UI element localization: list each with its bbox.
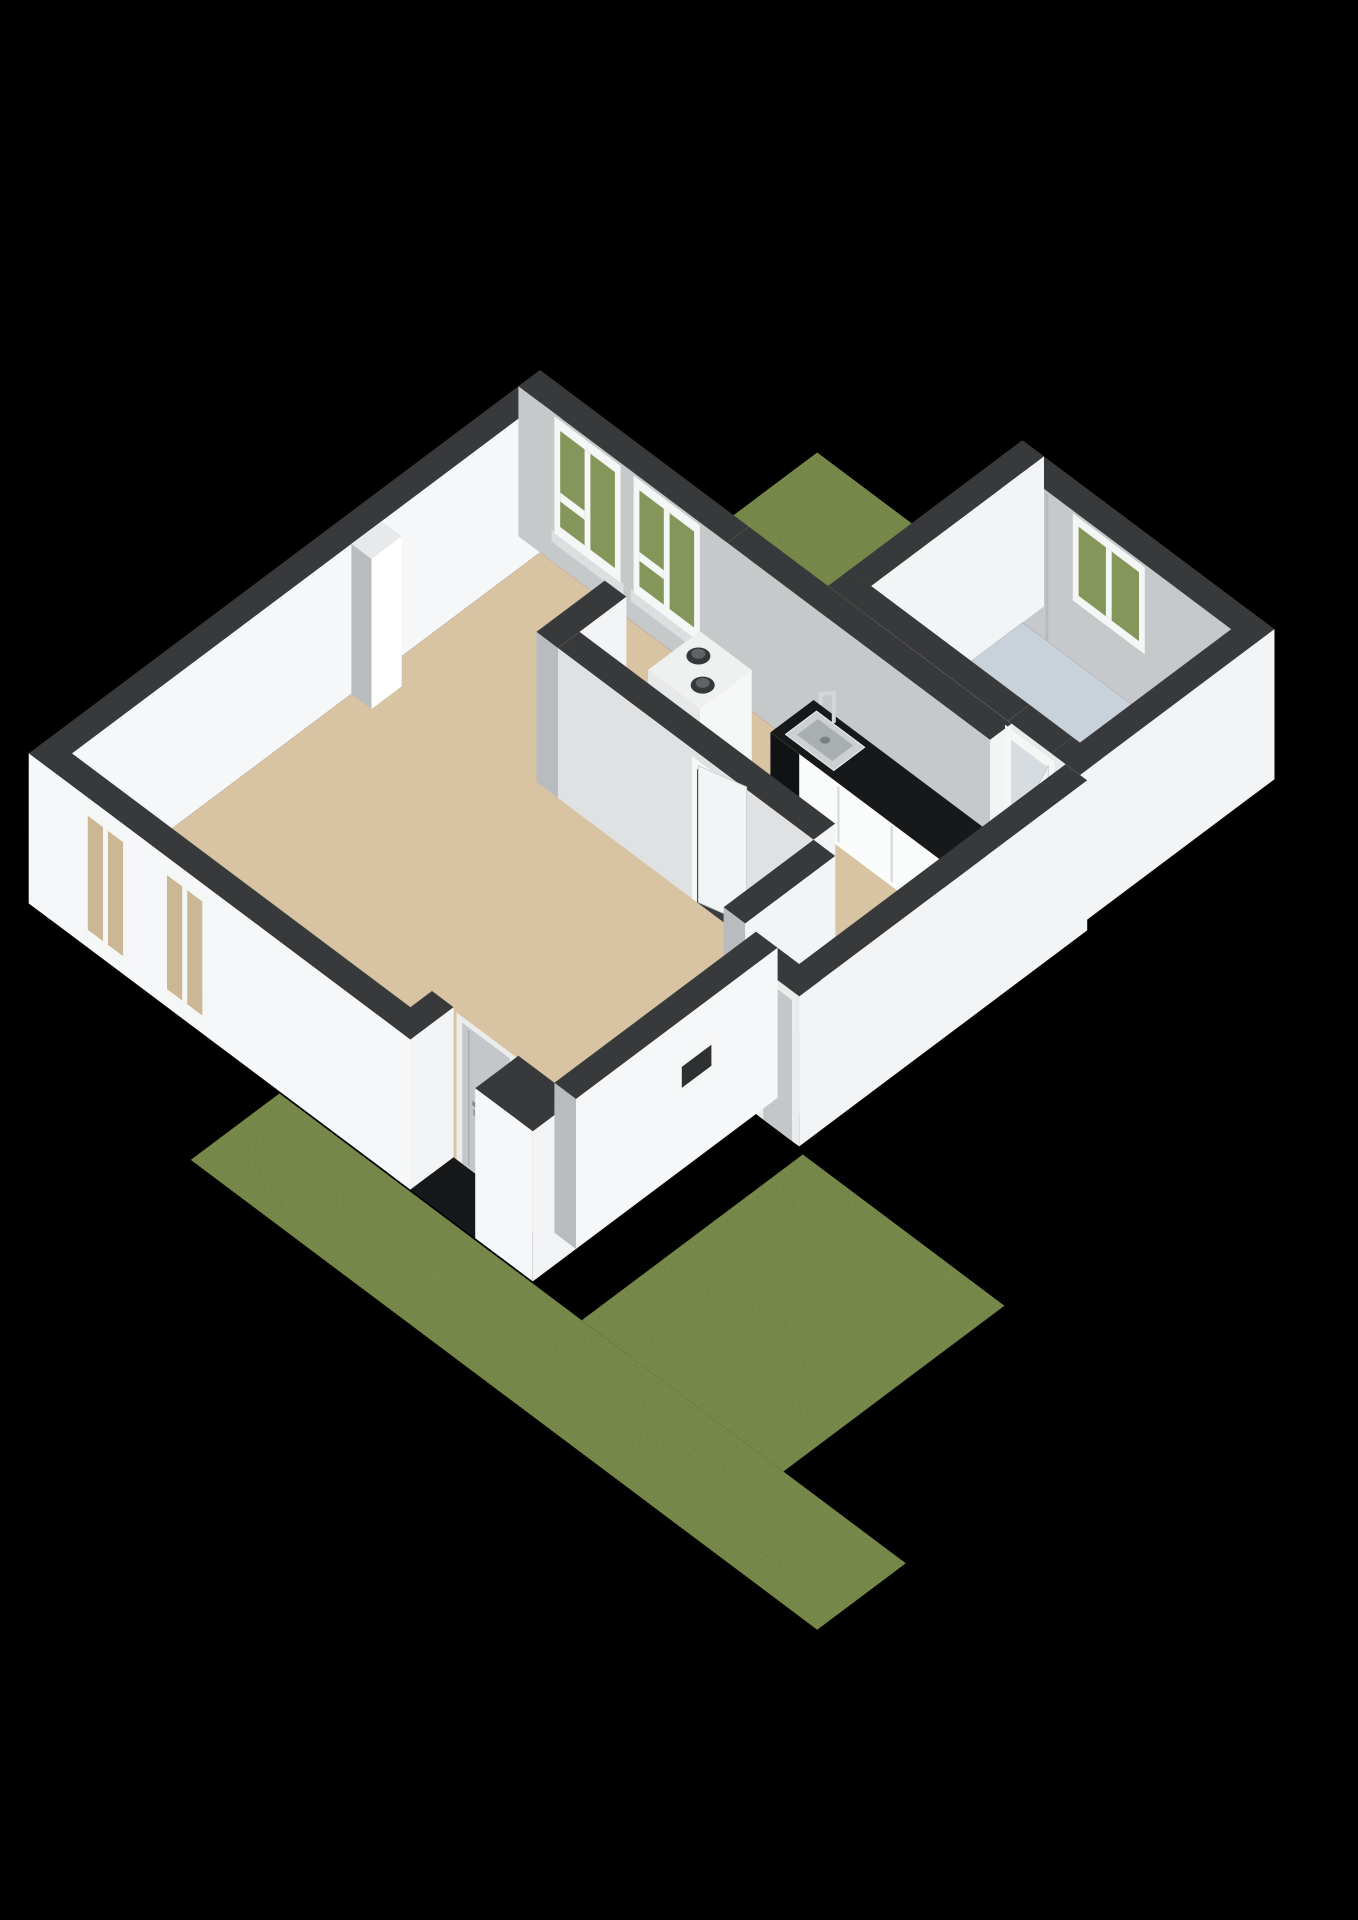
alcove-side-wall — [389, 991, 454, 1190]
storage-window-mullion — [1106, 547, 1112, 620]
kitchen-partition-short-face-v — [536, 632, 558, 798]
wall-pillar — [351, 521, 401, 709]
right-exterior-wall-face-v — [554, 1083, 576, 1249]
lower-window-1-mullion — [103, 827, 108, 945]
boiler-vent-1-inner — [691, 649, 705, 659]
storage-wall-seam — [1045, 493, 1048, 642]
wall-pillar-face-v — [351, 544, 371, 709]
sink-drain — [820, 737, 830, 744]
alcove-side-wall-face-v — [389, 1023, 411, 1189]
interior-door-frame-left — [692, 756, 697, 902]
floorplan-3d-render — [0, 0, 1358, 1920]
living-window-1-mullion — [585, 449, 591, 549]
living-window-2-mullion — [664, 509, 670, 609]
cabinet-seam-1 — [837, 786, 839, 843]
floorplan-viewport — [0, 0, 1358, 1920]
wall-pillar-face-u — [372, 536, 402, 709]
front-door-edge — [468, 1030, 469, 1166]
cabinet-seam-2 — [891, 826, 893, 883]
boiler-vent-2-inner — [696, 678, 710, 688]
lower-window-2-mullion — [182, 886, 187, 1004]
